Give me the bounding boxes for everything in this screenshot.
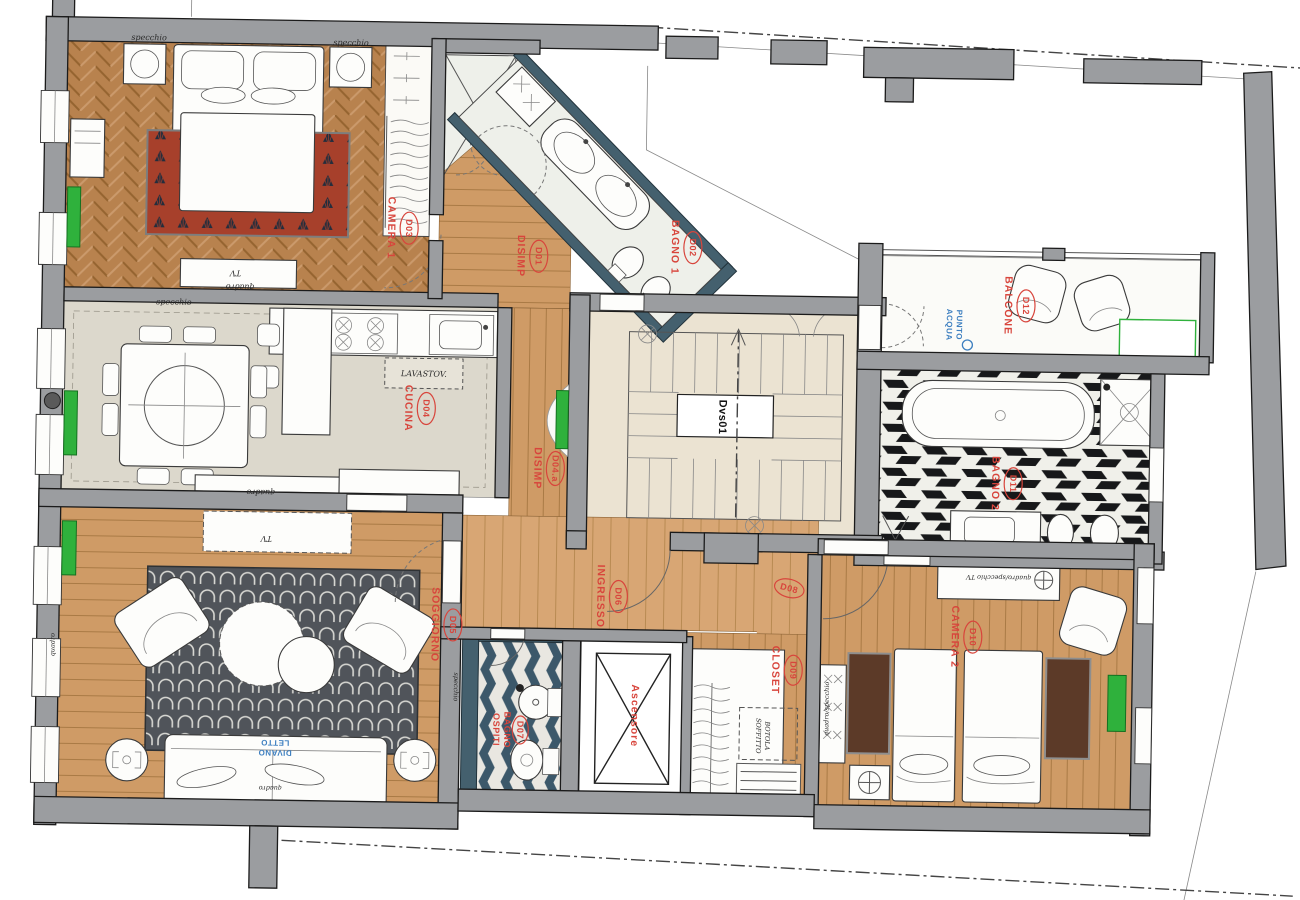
chair [250,366,267,398]
lamp [130,50,158,78]
svg-text:DISIMP: DISIMP [514,235,527,277]
svg-text:INGRESSO: INGRESSO [594,564,607,628]
svg-text:BOTOLA: BOTOLA [763,720,771,750]
svg-text:D05: D05 [448,616,458,634]
annotation-quadro-specchio: quadro/specchio [822,681,831,736]
svg-text:CUCINA: CUCINA [402,385,415,432]
svg-text:OSPITI: OSPITI [491,713,502,746]
column [44,392,60,408]
bedside-table [849,765,890,800]
svg-text:D09: D09 [788,661,798,679]
svg-text:D02: D02 [688,238,698,256]
svg-text:D04: D04 [421,399,431,417]
chair [139,326,171,343]
annotation-quadro: quadro [48,633,56,657]
bolster [251,88,295,105]
single-bed [962,650,1042,803]
svg-text:D03: D03 [404,219,414,237]
radiator [556,391,569,449]
svg-text:BAGNO: BAGNO [502,711,513,748]
svg-text:D01: D01 [534,247,544,265]
annotation-quadro: quadro [258,784,282,792]
coffee-table [278,636,335,693]
svg-text:BALCONE: BALCONE [1002,276,1015,335]
dresser-left [70,119,105,178]
svg-text:D07: D07 [515,721,525,739]
room-label-bagno-ospiti: D07 BAGNO OSPITI [491,711,529,748]
svg-text:Dvs01: Dvs01 [716,400,729,435]
floor-plan-page: specchio specchio specchio TV quadro qua… [0,0,1300,900]
svg-text:Ascensore: Ascensore [628,684,641,747]
bed-visible [179,113,315,213]
svg-text:D04.a: D04.a [550,455,560,483]
svg-text:DISIMP: DISIMP [531,447,544,489]
chair [102,403,119,435]
window [40,90,69,142]
pillow [253,52,316,91]
svg-text:CLOSET: CLOSET [769,646,782,695]
tv-console-soggiorno [203,511,352,553]
side-table [393,739,436,782]
svg-text:LETTO: LETTO [261,738,290,747]
brown-runner [1045,658,1091,759]
lamp-symbol [1035,571,1053,589]
svg-text:ACQUA: ACQUA [944,309,953,341]
window [30,726,59,782]
svg-text:SOGGIORNO: SOGGIORNO [428,587,441,662]
chair [250,406,267,438]
room-label-ascensore: Ascensore [628,684,641,747]
side-table [105,738,148,781]
chair [102,363,119,395]
window [35,414,64,474]
svg-text:SOFFITTO: SOFFITTO [754,718,763,754]
label-divano-letto: DIVANO LETTO [258,738,292,758]
radiator [62,521,77,575]
stool [257,324,279,346]
annotation-quadro-specchio-tv: quadro/specchio TV [965,573,1032,582]
brown-runner [847,653,891,754]
annotation-quadro: quadro [246,488,275,497]
label-punto-acqua: PUNTO ACQUA [944,309,963,341]
svg-text:BAGNO 1: BAGNO 1 [668,220,681,275]
svg-text:DIVANO: DIVANO [258,748,292,758]
annotation-tv: TV [229,268,241,277]
annotation-quadro: quadro [226,282,255,291]
bench [339,469,459,495]
annotation-specchio: specchio [452,673,460,702]
svg-text:D10: D10 [968,628,978,646]
chair [183,327,215,344]
radiator [1107,675,1126,731]
annotation-specchio: specchio [333,38,369,48]
balcony-mat [1119,319,1196,358]
svg-text:D06: D06 [613,587,623,605]
stove [325,313,398,354]
annotation-lavastoviglie: LAVASTOV. [400,369,447,379]
svg-text:CAMERA 2: CAMERA 2 [948,605,961,668]
chair [137,468,169,485]
bolster [201,87,245,104]
radiator [64,391,78,455]
label-botola-soffitto: BOTOLA SOFFITTO [754,718,772,754]
window [39,212,68,264]
single-bed [892,649,956,802]
radiator [67,187,81,247]
kitchen-island [282,308,332,435]
annotation-specchio: specchio [156,297,192,307]
annotation-tv: TV [259,534,271,543]
floor-plan-drawing: specchio specchio specchio TV quadro qua… [0,0,1300,900]
room-label-stairwell: Dvs01 [716,400,729,435]
corridor-d08-floor [757,538,811,649]
svg-text:CAMERA 1: CAMERA 1 [385,197,398,260]
annotation-specchio: specchio [131,33,167,43]
window [33,546,62,604]
svg-text:D11: D11 [1008,475,1018,493]
pillow [181,51,244,90]
window [37,328,66,388]
svg-text:PUNTO: PUNTO [954,310,963,340]
svg-text:BAGNO 2: BAGNO 2 [989,456,1002,511]
svg-text:D12: D12 [1021,297,1031,315]
lamp [336,53,364,81]
